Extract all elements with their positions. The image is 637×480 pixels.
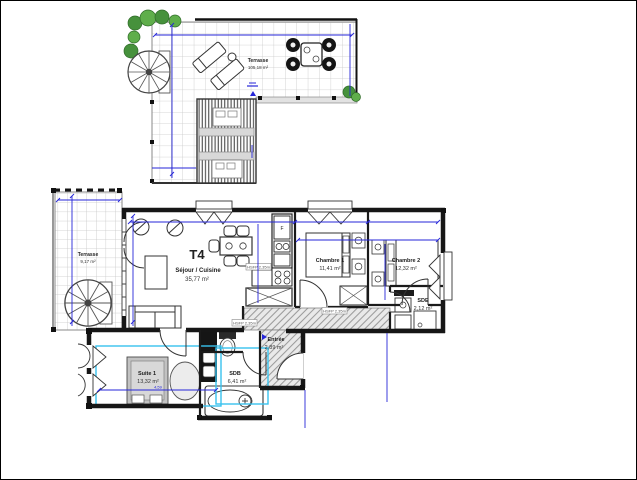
roof-terrace-plan: Terrasse 105,18 m² [124,10,361,184]
hsfp-label-corridor: HSFP 2,35m [323,309,346,314]
room-label-chambre2: Chambre 2 [392,258,420,264]
window-box-living [196,201,232,209]
window-box-chambre1 [308,201,352,209]
room-area-chambre2: 12,32 m² [395,266,417,272]
room-label-suite1: Suite 1 [138,371,156,377]
room-area-sdb: 6,41 m² [228,379,247,385]
main-floor-plan: Terrasse 9,17 m² [51,188,452,428]
dining-set [209,226,252,266]
apartment-type-label: T4 [189,247,205,262]
washbasin-column [201,331,217,382]
room-label-sejour: Séjour / Cuisine [175,268,221,274]
sofa [129,306,181,328]
spiral-staircase-roof-icon [128,51,170,93]
suite-chair [170,362,200,400]
terrace-lower-area: 9,17 m² [80,259,96,264]
floor-plan-drawing: Terrasse 105,18 m² Terrasse 9,17 m² [0,0,637,480]
room-area-chambre1: 11,41 m² [319,266,340,272]
sde-shower [414,311,436,330]
dishwasher [252,270,272,286]
room-area-sejour: 35,77 m² [185,277,209,283]
side-table-icon [228,53,236,61]
roof-terrace-name: Terrasse [248,58,269,64]
roof-edge-strip [256,97,357,103]
fridge-label: F [280,226,283,232]
hsfp-label-kitchen: HSFP 2,35m [247,265,270,270]
suite-shutter-arc2 [78,374,85,396]
corridor-hatch [244,308,390,330]
kitchen-island [246,288,292,306]
oven [274,254,290,266]
coffee-table [145,256,167,289]
room-label-sdb: SDB [229,371,241,377]
room-area-entree: 2,89 m² [265,345,284,351]
roof-terrace-area: 105,18 m² [248,65,269,70]
floor-plan-canvas: Terrasse 105,18 m² Terrasse 9,17 m² [0,0,637,480]
room-label-sde: SDE [417,298,429,304]
window-box-chambre2 [444,252,452,300]
terrace-lower-name: Terrasse [78,252,99,258]
suite-shutter-arc1 [78,344,90,368]
terrace-lower: Terrasse 9,17 m² [51,188,122,332]
pergola [197,99,256,183]
bathtub [205,386,263,416]
hsfp-label-entree: HSFP 2,35m [233,321,256,326]
room-label-chambre1: Chambre 1 [316,258,344,264]
room-area-sde: 2,12 m² [414,306,433,312]
room-label-entree: Entrée [267,337,284,343]
wardrobe-chambre1 [340,286,367,305]
suite-width-dim-label: 4,59 [154,385,163,390]
